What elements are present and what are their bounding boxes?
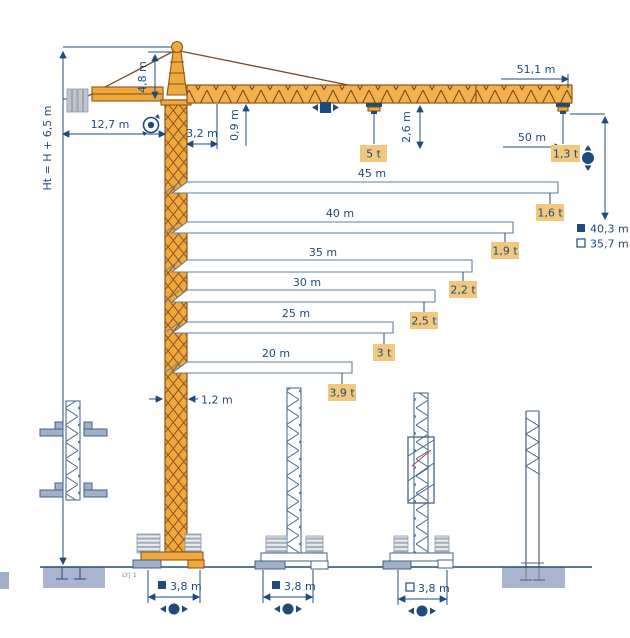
open-square-icon [406,583,414,591]
counter-jib [92,87,163,101]
tower-head-label: 4,8 m [136,61,149,93]
mast-3 [414,393,428,553]
filled-square-icon [272,581,280,589]
apex-ball [172,42,183,53]
base1-gauge-label: 3,8 m [170,580,202,593]
svg-text:1,9 t: 1,9 t [492,245,518,258]
counter-jib-label: 12,7 m [91,118,130,131]
legend-filled-value: 40,3 m [590,223,629,236]
svg-text:3,9 t: 3,9 t [329,387,355,400]
base3-gauge-label: 3,8 m [418,582,450,595]
svg-text:1,6 t: 1,6 t [537,207,563,220]
filled-square-icon [158,581,166,589]
open-square-icon [577,239,585,247]
svg-text:20 m: 20 m [262,347,290,360]
svg-text:40 m: 40 m [326,207,354,220]
svg-text:3 t: 3 t [377,347,392,360]
tip-load-label: 1,3 t [553,148,579,161]
min-radius-label: 3,2 m [186,127,218,140]
jib-length-label: 51,1 m [517,63,556,76]
total-height-label: Ht = H + 6,5 m [41,106,54,191]
svg-text:45 m: 45 m [358,167,386,180]
edge-foundation [0,572,9,589]
diagram-canvas: Ht = H + 6,5 m [0,0,630,638]
filled-square-icon [577,224,585,232]
svg-text:25 m: 25 m [282,307,310,320]
mast-2 [287,388,301,554]
svg-text:30 m: 30 m [293,276,321,289]
max-load-label: 5 t [366,148,381,161]
svg-text:2,5 t: 2,5 t [411,315,437,328]
max-load-badge: 5 t [360,145,387,162]
jib [187,85,572,103]
jib-depth-label: 0,9 m [228,109,241,141]
crane-spec-diagram: Ht = H + 6,5 m [0,0,630,638]
mast-width-label: 1,2 m [201,394,233,407]
left-foundation-block [43,567,105,588]
svg-text:2,2 t: 2,2 t [450,284,476,297]
svg-text:35 m: 35 m [309,246,337,259]
tip-radius-label: 50 m [518,131,546,144]
model-label: LYJ 1 [122,571,137,579]
base2-gauge-label: 3,8 m [284,580,316,593]
legend-open-value: 35,7 m [590,238,629,251]
hook-drop-label: 2,6 m [400,111,413,143]
tip-load-badge: 1,3 t [551,145,580,162]
